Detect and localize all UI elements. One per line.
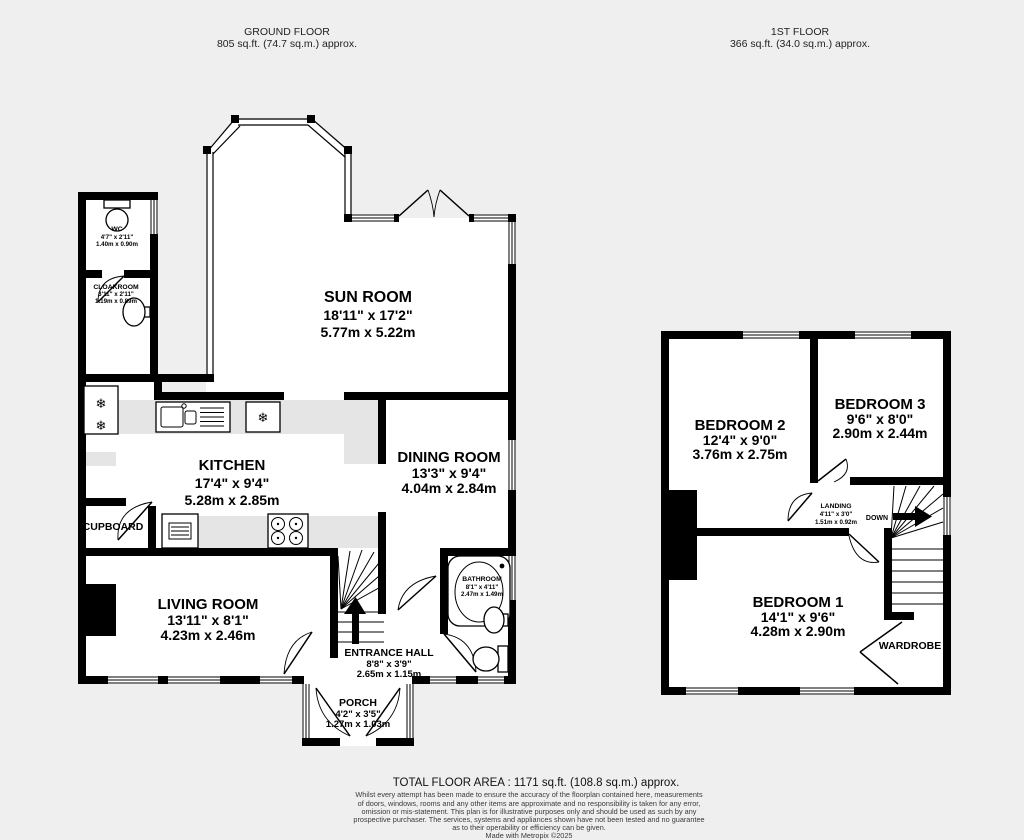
window	[352, 214, 394, 222]
first-floor-area: 366 sq.ft. (34.0 sq.m.) approx.	[730, 38, 870, 50]
kitchen-dims-imperial: 17'4" x 9'4"	[195, 475, 269, 491]
window	[430, 676, 456, 684]
metropix-credit: Made with Metropix ©2025	[486, 831, 573, 840]
sun-room-dims-metric: 5.77m x 5.22m	[321, 324, 416, 340]
kitchen-label: KITCHEN	[199, 457, 266, 474]
snowflake-icon: ❄	[96, 418, 107, 433]
window	[686, 687, 738, 695]
disclaimer-line: Whilst every attempt has been made to en…	[355, 790, 703, 799]
window	[168, 676, 220, 684]
sun-room-label: SUN ROOM	[324, 289, 412, 306]
ground-floor-title: GROUND FLOOR	[244, 26, 330, 38]
cloakroom-dims-imperial: 3'11" x 2'11"	[98, 291, 134, 298]
snowflake-icon: ❄	[258, 410, 269, 425]
entrance-hall-dims-metric: 2.65m x 1.15m	[357, 669, 421, 680]
landing-dims-metric: 1.51m x 0.92m	[815, 519, 857, 526]
bedroom-1-dims-metric: 4.28m x 2.90m	[751, 623, 846, 639]
window	[508, 222, 516, 264]
landing-label: LANDING	[821, 503, 852, 510]
floorplan-canvas: GROUND FLOOR 805 sq.ft. (74.7 sq.m.) app…	[0, 0, 1024, 840]
window	[474, 214, 508, 222]
living-room-label: LIVING ROOM	[158, 596, 259, 613]
porch-label: PORCH	[339, 697, 377, 709]
floorplan-page: GROUND FLOOR 805 sq.ft. (74.7 sq.m.) app…	[0, 0, 1024, 840]
window	[406, 684, 414, 738]
porch-dims-metric: 1.27m x 1.03m	[326, 719, 390, 730]
hob	[268, 514, 308, 548]
window	[260, 676, 292, 684]
bathroom-toilet	[473, 646, 508, 672]
kitchen-dims-metric: 5.28m x 2.85m	[185, 492, 280, 508]
total-floor-area: TOTAL FLOOR AREA : 1171 sq.ft. (108.8 sq…	[393, 777, 680, 789]
wardrobe-label: WARDROBE	[879, 640, 941, 652]
window	[743, 331, 799, 339]
cupboard-label: CUPBOARD	[83, 521, 144, 533]
bathroom-dims-metric: 2.47m x 1.49m	[461, 591, 503, 598]
down-label: DOWN	[866, 515, 888, 522]
window	[150, 200, 158, 234]
snowflake-icon: ❄	[96, 396, 107, 411]
wc-dims-imperial: 4'7" x 2'11"	[101, 234, 134, 241]
first-floor-title: 1ST FLOOR	[771, 26, 830, 38]
wc-dims-metric: 1.40m x 0.90m	[96, 241, 138, 248]
entrance-hall-label: ENTRANCE HALL	[344, 647, 434, 659]
dining-room-label: DINING ROOM	[397, 449, 500, 466]
dining-room-dims-metric: 4.04m x 2.84m	[402, 480, 497, 496]
bedroom-2-dims-metric: 3.76m x 2.75m	[693, 446, 788, 462]
fridge-freezer: ❄ ❄	[84, 386, 118, 434]
first-floor-plan: DOWN BEDROOM 2 12'4" x 9'0" 3.76m x 2.75…	[661, 331, 951, 695]
sun-room-dims-imperial: 18'11" x 17'2"	[323, 307, 412, 323]
ground-floor-area: 805 sq.ft. (74.7 sq.m.) approx.	[217, 38, 357, 50]
bedroom-3-dims-metric: 2.90m x 2.44m	[833, 425, 928, 441]
kitchen-sink	[156, 402, 230, 432]
window	[800, 687, 854, 695]
bathroom-dims-imperial: 8'1" x 4'11"	[466, 584, 499, 591]
landing-dims-imperial: 4'11" x 3'0"	[820, 511, 853, 518]
cloakroom-dims-metric: 1.19m x 0.89m	[95, 298, 137, 305]
window	[508, 440, 516, 490]
freezer: ❄	[246, 402, 280, 432]
window	[108, 676, 158, 684]
cloakroom-label: CLOAKROOM	[93, 284, 139, 291]
living-room-dims-metric: 4.23m x 2.46m	[161, 627, 256, 643]
wc-label: WC	[111, 226, 122, 233]
window	[478, 676, 504, 684]
window	[943, 497, 951, 535]
window	[302, 684, 310, 738]
oven	[162, 514, 198, 548]
living-room-dims-imperial: 13'11" x 8'1"	[167, 612, 248, 628]
dining-room-dims-imperial: 13'3" x 9'4"	[412, 465, 486, 481]
bathroom-label: BATHROOM	[462, 576, 502, 583]
window	[855, 331, 911, 339]
